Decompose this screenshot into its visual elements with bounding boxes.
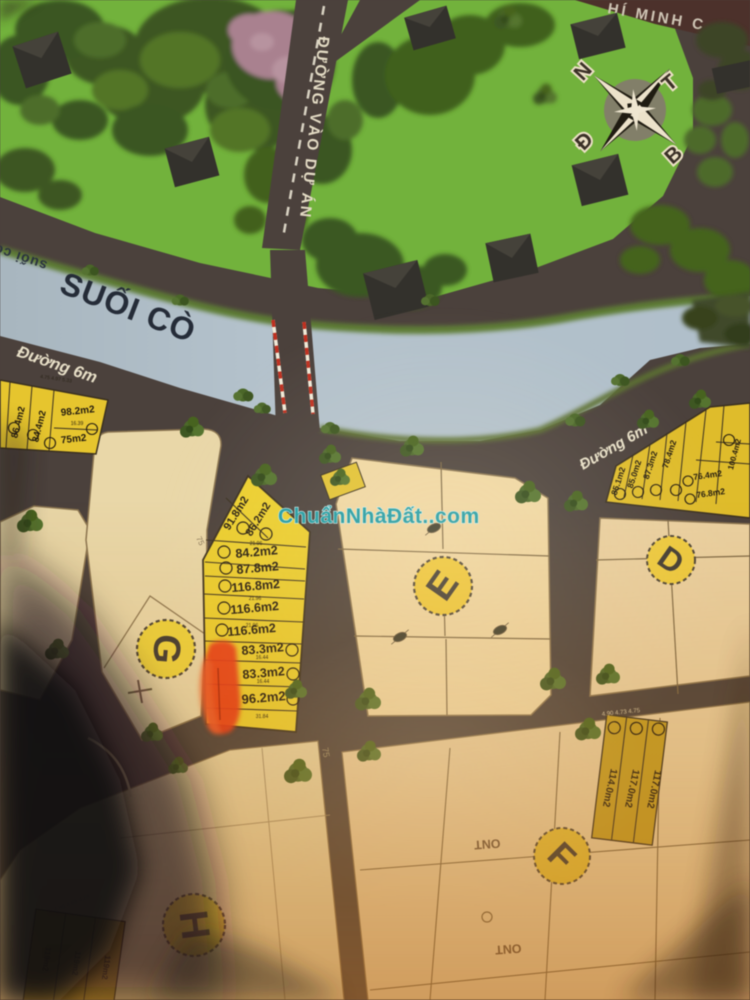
svg-text:16.39: 16.39 [71, 421, 84, 427]
